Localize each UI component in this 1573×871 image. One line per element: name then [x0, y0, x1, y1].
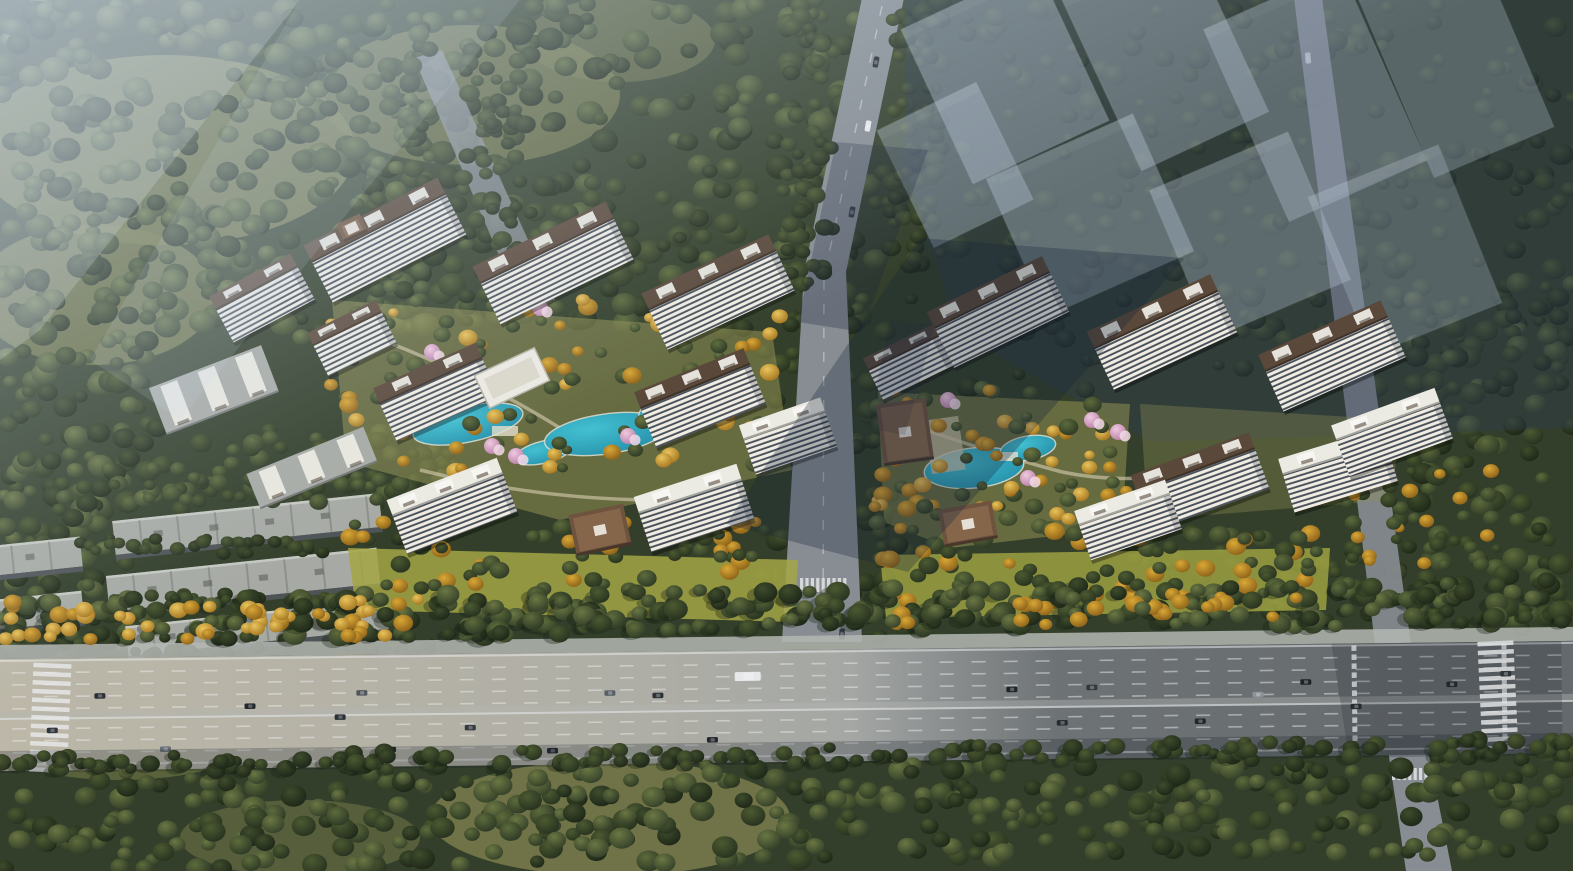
- scene-canvas: [0, 0, 1573, 871]
- aerial-rendering: [0, 0, 1573, 871]
- sunlight-haze: [0, 0, 1573, 871]
